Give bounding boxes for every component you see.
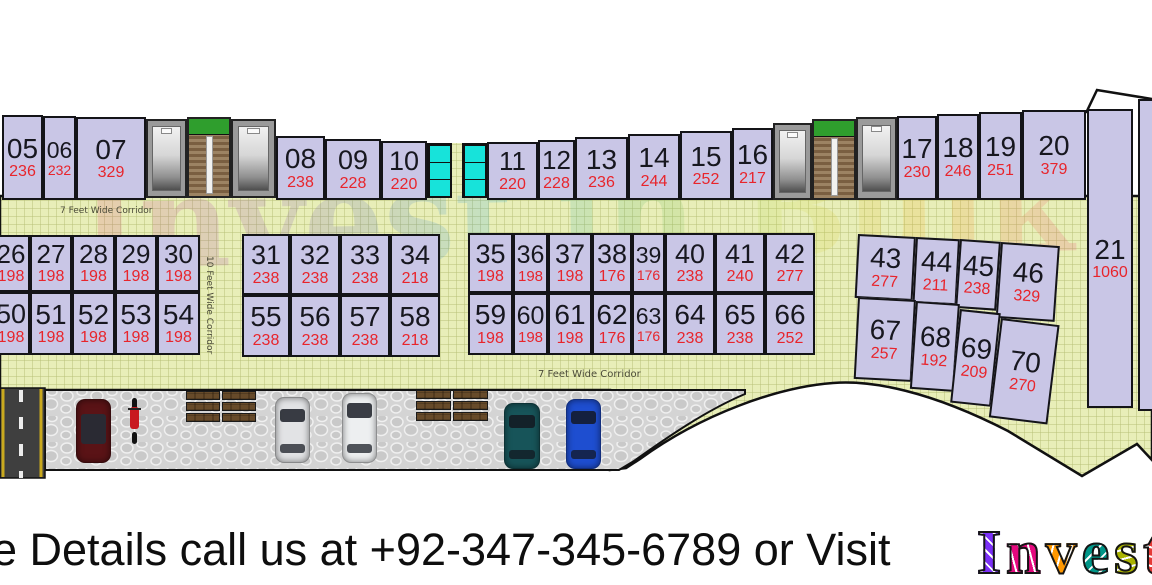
unit-area: 238 [253, 271, 280, 288]
unit-number: 15 [690, 142, 721, 171]
unit-number: 67 [869, 315, 902, 346]
unit-area: 198 [38, 269, 65, 286]
logo-letter-e: e [1082, 519, 1115, 585]
unit-number: 36 [517, 242, 545, 268]
unit-number: 57 [349, 302, 380, 331]
unit-number: 09 [338, 146, 368, 174]
unit-area: 251 [987, 163, 1014, 180]
car-suv-white [342, 393, 377, 463]
unit-number: 13 [586, 145, 617, 174]
unit-area: 236 [9, 164, 36, 181]
car-white [275, 397, 310, 463]
planter-tile [416, 412, 451, 421]
corridor-label-vertical: 10 Feet Wide Corridor [204, 256, 214, 366]
unit-area: 220 [391, 177, 418, 194]
unit-number: 69 [959, 333, 993, 365]
unit-45: 45238 [955, 239, 1001, 311]
unit-area: 198 [518, 330, 543, 346]
elevator-shaft [862, 125, 890, 193]
unit-area: 252 [777, 331, 804, 348]
elevator-shaft [152, 126, 180, 191]
unit-area: 218 [402, 333, 429, 350]
planter-tile [453, 412, 488, 421]
unit-number: 43 [869, 243, 902, 274]
elevator [773, 123, 812, 200]
unit-number: 53 [120, 300, 151, 329]
unit-number: 55 [250, 302, 281, 331]
unit-28: 28198 [72, 235, 115, 292]
unit-number: 42 [775, 240, 805, 268]
unit-area: 257 [870, 346, 898, 364]
stair-cell [464, 179, 486, 197]
unit-61: 61198 [548, 293, 592, 355]
unit-number: 32 [300, 241, 330, 269]
unit-40: 40238 [665, 233, 715, 293]
car-window [509, 415, 535, 428]
brick-wall [812, 119, 856, 200]
unit-number: 64 [674, 300, 705, 329]
logo-letter-I: I [977, 519, 1006, 585]
unit-number: 68 [919, 322, 952, 353]
unit-number: 38 [597, 240, 627, 268]
unit-35: 35198 [468, 233, 513, 293]
unit-19: 19251 [979, 112, 1022, 200]
elevator [231, 119, 276, 198]
brick-wall [187, 117, 231, 198]
unit-area: 220 [499, 177, 526, 194]
unit-number: 31 [251, 241, 281, 269]
unit-26: 26198 [0, 235, 30, 292]
car-blue [566, 399, 601, 469]
unit-44: 44211 [913, 237, 960, 305]
unit-number: 54 [163, 300, 194, 329]
unit-number: 07 [95, 135, 126, 164]
unit-area: 240 [727, 269, 754, 286]
unit-52: 52198 [72, 292, 115, 355]
unit-number: 51 [35, 300, 66, 329]
unit-area: 228 [340, 176, 367, 193]
unit-17: 17230 [897, 116, 937, 200]
unit-area: 238 [727, 331, 754, 348]
unit-29: 29198 [115, 235, 157, 292]
unit-area: 238 [352, 333, 379, 350]
unit-area: 198 [518, 269, 543, 285]
unit-number: 19 [985, 132, 1016, 161]
unit-56: 56238 [290, 295, 340, 357]
unit-area: 232 [48, 163, 71, 178]
unit-66: 66252 [765, 293, 815, 355]
unit-area: 217 [739, 171, 766, 188]
unit-number: 18 [942, 133, 973, 162]
unit-43: 43277 [855, 234, 916, 301]
unit-area: 238 [352, 271, 379, 288]
unit-number: 62 [596, 300, 627, 329]
green-cap [189, 119, 229, 135]
unit-partial-right [1138, 99, 1152, 411]
unit-area: 246 [945, 164, 972, 181]
unit-area: 176 [637, 268, 660, 283]
unit-42: 42277 [765, 233, 815, 293]
unit-number: 46 [1012, 257, 1045, 288]
planter-tile [453, 390, 488, 399]
unit-area: 198 [80, 269, 107, 286]
unit-area: 198 [165, 269, 192, 286]
unit-70: 70270 [989, 318, 1060, 424]
unit-65: 65238 [715, 293, 765, 355]
unit-30: 30198 [157, 235, 200, 292]
logo-letter-n: n [1006, 519, 1045, 585]
car-window [81, 414, 106, 444]
unit-number: 28 [79, 241, 108, 268]
stairs-block [427, 143, 452, 198]
unit-number: 60 [517, 303, 545, 329]
planter-tile [186, 391, 220, 400]
unit-62: 62176 [592, 293, 632, 355]
logo-letter-t: t [1143, 519, 1152, 585]
unit-area: 236 [588, 175, 615, 192]
moto-body [130, 407, 139, 429]
unit-number: 41 [725, 240, 755, 268]
unit-13: 13236 [575, 137, 628, 200]
unit-area: 176 [599, 331, 626, 348]
elevator-lamp [787, 132, 798, 138]
unit-area: 238 [302, 271, 329, 288]
unit-area: 238 [302, 333, 329, 350]
unit-14: 14244 [628, 134, 680, 200]
unit-64: 64238 [665, 293, 715, 355]
unit-20: 20379 [1022, 110, 1086, 200]
unit-area: 211 [922, 277, 948, 295]
elevator [146, 119, 187, 198]
unit-number: 35 [475, 240, 505, 268]
unit-number: 16 [737, 140, 768, 169]
unit-number: 05 [7, 134, 38, 163]
unit-number: 30 [164, 241, 193, 268]
car-window [571, 411, 596, 424]
corridor-stairs-gap [452, 143, 462, 198]
unit-area: 198 [0, 269, 24, 286]
unit-12: 12228 [538, 140, 575, 200]
brick-planter [186, 391, 258, 422]
unit-number: 50 [0, 300, 26, 328]
unit-area: 238 [677, 331, 704, 348]
logo-letter-v: v [1046, 519, 1082, 585]
motorcycle [128, 398, 141, 444]
unit-number: 44 [920, 247, 953, 278]
unit-number: 17 [901, 134, 932, 163]
unit-15: 15252 [680, 131, 732, 200]
unit-54: 54198 [157, 292, 200, 355]
unit-number: 34 [400, 241, 430, 269]
unit-60: 60198 [513, 293, 548, 355]
unit-area: 198 [557, 331, 584, 348]
unit-number: 66 [774, 300, 805, 329]
unit-number: 27 [37, 241, 66, 268]
unit-area: 1060 [1092, 265, 1128, 282]
unit-number: 58 [399, 302, 430, 331]
planter-tile [222, 391, 256, 400]
unit-16: 16217 [732, 128, 773, 200]
car-window [280, 444, 305, 453]
unit-area: 379 [1041, 162, 1068, 179]
unit-area: 238 [287, 175, 314, 192]
unit-number: 14 [638, 143, 669, 172]
unit-50: 50198 [0, 292, 30, 355]
car-window [571, 450, 596, 459]
unit-area: 277 [871, 274, 899, 292]
stair-cell [429, 162, 451, 180]
unit-59: 59198 [468, 293, 513, 355]
unit-number: 59 [475, 300, 506, 329]
unit-67: 67257 [854, 297, 916, 382]
unit-09: 09228 [325, 139, 381, 200]
planter-tile [453, 401, 488, 410]
unit-34: 34218 [390, 234, 440, 295]
unit-number: 08 [285, 144, 316, 173]
stairs-block [462, 143, 487, 198]
planter-tile [416, 390, 451, 399]
unit-57: 57238 [340, 295, 390, 357]
unit-area: 198 [165, 330, 192, 347]
footer-contact-text: e Details call us at +92-347-345-6789 or… [0, 524, 890, 576]
unit-39: 39176 [632, 233, 665, 293]
unit-32: 32238 [290, 234, 340, 295]
unit-38: 38176 [592, 233, 632, 293]
unit-number: 63 [636, 304, 662, 328]
moto-handlebar [128, 408, 141, 410]
road [0, 388, 45, 478]
stair-cell [464, 145, 486, 163]
unit-area: 198 [38, 330, 65, 347]
elevator-shaft [779, 130, 806, 193]
unit-36: 36198 [513, 233, 548, 293]
unit-number: 52 [78, 300, 109, 329]
car-teal [504, 403, 540, 469]
corridor-label-bottom: 7 Feet Wide Corridor [538, 369, 641, 380]
unit-number: 56 [299, 302, 330, 331]
moto-wheel [132, 432, 137, 444]
unit-31: 31238 [242, 234, 290, 295]
unit-37: 37198 [548, 233, 592, 293]
unit-21: 211060 [1087, 109, 1133, 408]
unit-08: 08238 [276, 136, 325, 200]
unit-area: 176 [599, 269, 626, 286]
wall-stripe [206, 136, 213, 194]
car-window [347, 403, 372, 418]
unit-area: 198 [477, 331, 504, 348]
unit-58: 58218 [390, 295, 440, 357]
unit-55: 55238 [242, 295, 290, 357]
unit-area: 230 [904, 165, 931, 182]
site-plan: Invest in Bulk 0523606232073290823809228… [0, 0, 1152, 585]
elevator-lamp [871, 126, 882, 132]
unit-05: 05236 [2, 115, 43, 200]
green-cap [814, 121, 854, 137]
elevator [856, 117, 897, 200]
car-red [76, 399, 111, 463]
unit-area: 198 [123, 269, 150, 286]
unit-41: 41240 [715, 233, 765, 293]
elevator-shaft [238, 126, 269, 191]
stair-cell [429, 145, 451, 163]
unit-area: 209 [960, 363, 988, 382]
unit-number: 33 [350, 241, 380, 269]
unit-area: 329 [98, 165, 125, 182]
unit-53: 53198 [115, 292, 157, 355]
unit-number: 45 [962, 250, 995, 281]
elevator-lamp [247, 128, 259, 134]
unit-number: 12 [542, 147, 571, 174]
planter-tile [222, 413, 256, 422]
planter-tile [186, 413, 220, 422]
car-window [347, 444, 372, 453]
unit-number: 39 [636, 243, 662, 267]
stair-cell [429, 179, 451, 197]
unit-area: 270 [1008, 376, 1037, 396]
unit-area: 244 [641, 174, 668, 191]
unit-area: 238 [963, 281, 991, 300]
stair-cell [464, 162, 486, 180]
unit-area: 238 [677, 269, 704, 286]
unit-27: 27198 [30, 235, 72, 292]
unit-46: 46329 [996, 242, 1060, 322]
unit-number: 40 [675, 240, 705, 268]
unit-area: 238 [253, 333, 280, 350]
corridor-label-top: 7 Feet Wide Corridor [60, 206, 153, 216]
unit-number: 61 [554, 300, 585, 329]
unit-area: 277 [777, 269, 804, 286]
unit-area: 252 [693, 172, 720, 189]
unit-number: 70 [1008, 346, 1043, 379]
unit-area: 192 [920, 352, 948, 371]
wall-stripe [831, 138, 838, 196]
unit-63: 63176 [632, 293, 665, 355]
unit-number: 20 [1038, 131, 1069, 160]
unit-number: 21 [1094, 235, 1125, 264]
planter-tile [186, 402, 220, 411]
unit-area: 198 [477, 269, 504, 286]
unit-area: 198 [80, 330, 107, 347]
unit-33: 33238 [340, 234, 390, 295]
unit-area: 218 [402, 271, 429, 288]
unit-51: 51198 [30, 292, 72, 355]
unit-area: 198 [557, 269, 584, 286]
planter-tile [416, 401, 451, 410]
unit-area: 198 [0, 330, 24, 347]
unit-number: 37 [555, 240, 585, 268]
unit-area: 198 [123, 330, 150, 347]
unit-number: 06 [47, 138, 73, 162]
unit-area: 329 [1013, 288, 1041, 307]
elevator-lamp [161, 128, 172, 134]
unit-number: 10 [389, 147, 419, 175]
unit-number: 26 [0, 241, 25, 268]
planter-tile [222, 402, 256, 411]
unit-11: 11220 [487, 142, 538, 200]
unit-area: 176 [637, 329, 660, 344]
unit-18: 18246 [937, 114, 979, 200]
unit-07: 07329 [76, 117, 146, 200]
unit-number: 11 [499, 148, 526, 175]
unit-area: 228 [543, 176, 570, 193]
car-window [509, 450, 535, 459]
footer-logo: Invest [977, 518, 1152, 585]
car-window [280, 409, 305, 422]
unit-06: 06232 [43, 116, 76, 200]
brick-planter [416, 390, 490, 421]
unit-number: 29 [122, 241, 151, 268]
unit-10: 10220 [381, 141, 427, 200]
logo-letter-s: s [1114, 519, 1143, 585]
unit-number: 65 [724, 300, 755, 329]
